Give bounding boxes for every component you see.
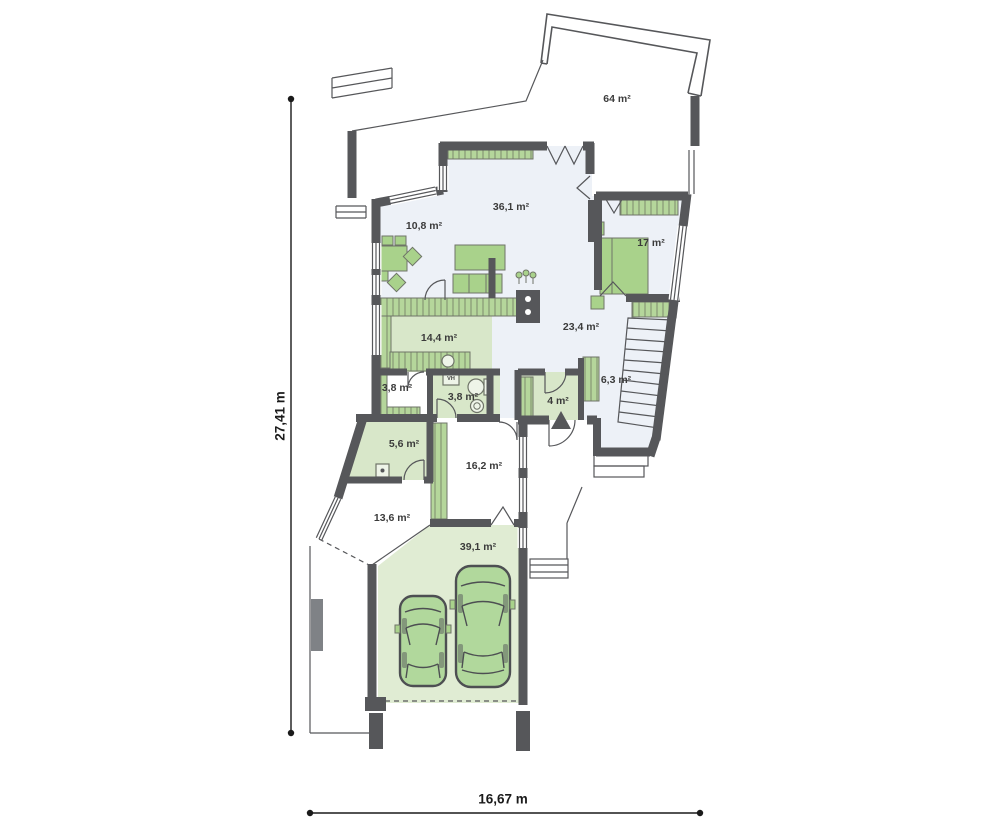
dimension-label-vertical: 27,41 m xyxy=(273,391,288,441)
room-label-water-heater: VH xyxy=(447,376,455,382)
room-label-bedroom: 17 m² xyxy=(637,237,664,249)
driveway xyxy=(310,546,372,733)
car-small xyxy=(395,596,451,686)
room-label-hall: 23,4 m² xyxy=(563,321,599,333)
room-label-garage: 39,1 m² xyxy=(460,541,496,553)
room-label-vestibule: 6,3 m² xyxy=(601,374,631,386)
dimension-horizontal xyxy=(307,810,703,816)
kitchen-island xyxy=(390,352,470,371)
room-label-pantry: 3,8 m² xyxy=(382,382,412,394)
mudroom-windows xyxy=(518,437,529,548)
living-west-window xyxy=(438,166,449,190)
kitchen-sink xyxy=(442,355,454,367)
room-label-utility: 5,6 m² xyxy=(389,438,419,450)
dimension-label-horizontal: 16,67 m xyxy=(478,792,528,807)
car-large xyxy=(450,566,515,687)
room-label-porch: 13,6 m² xyxy=(374,512,410,524)
exterior-steps xyxy=(332,68,392,218)
wardrobe xyxy=(620,200,678,215)
room-label-dining-room: 10,8 m² xyxy=(406,220,442,232)
nightstand xyxy=(591,296,604,309)
room-label-mudroom: 16,2 m² xyxy=(466,460,502,472)
stove xyxy=(516,290,540,323)
entrance-steps xyxy=(594,455,648,477)
floor-plan-page: 64 m²36,1 m²10,8 m²17 m²14,4 m²23,4 m²3,… xyxy=(0,0,1000,822)
side-steps xyxy=(530,487,582,578)
room-label-living-room: 36,1 m² xyxy=(493,201,529,213)
dimension-vertical xyxy=(288,96,294,736)
room-label-terrace: 64 m² xyxy=(603,93,630,105)
driveway-pillar xyxy=(311,599,323,651)
plants xyxy=(516,270,536,284)
vestibule-wardrobe xyxy=(583,357,599,401)
floor-plan-drawing xyxy=(0,0,1000,822)
room-label-kitchen: 14,4 m² xyxy=(421,332,457,344)
room-label-bathroom: 3,8 m² xyxy=(448,391,478,403)
coffee-table xyxy=(455,245,505,270)
room-label-entry: 4 m² xyxy=(547,395,569,407)
wardrobe xyxy=(632,302,674,317)
